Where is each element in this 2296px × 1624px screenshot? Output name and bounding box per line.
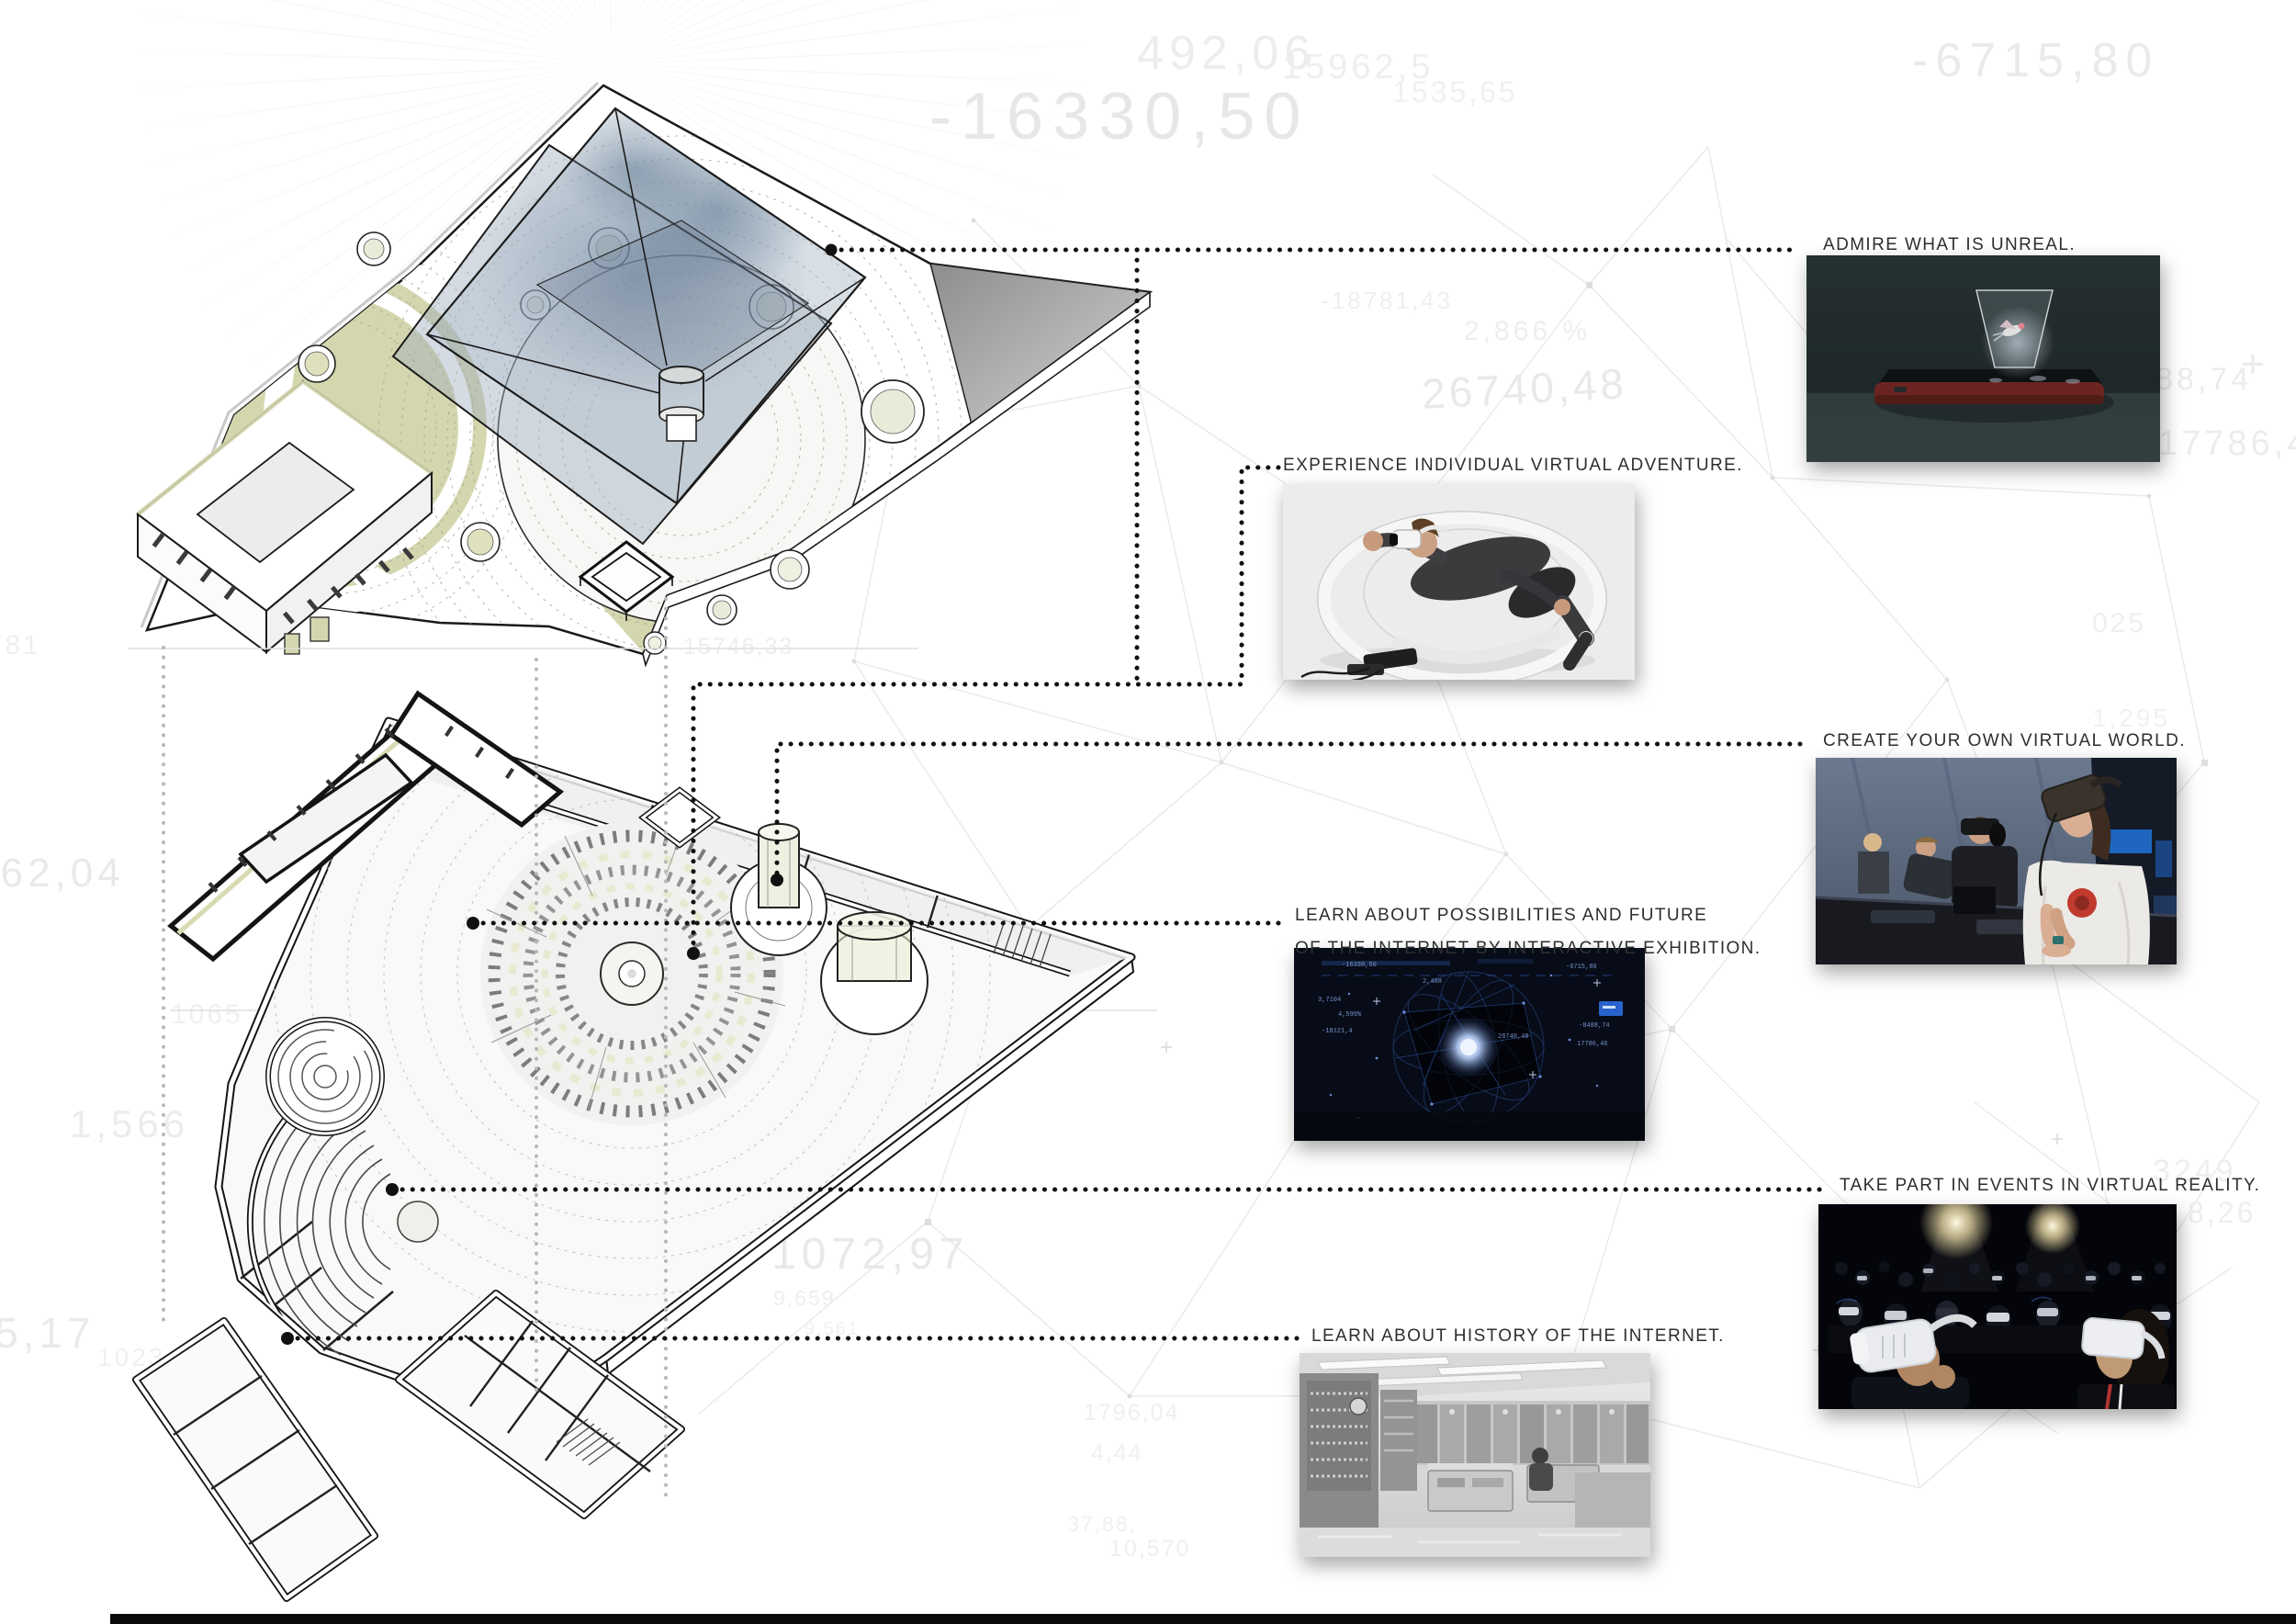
caption-create: CREATE YOUR OWN VIRTUAL WORLD. (1823, 731, 2186, 751)
photo-vr-rig (1283, 484, 1635, 680)
presentation-board: -16330,50492,0615962,51535,65-6715,80267… (0, 0, 2296, 1624)
vr-crowd-illustration (1818, 1204, 2177, 1409)
viz-label: 17786,46 (1577, 1041, 1608, 1048)
photo-computer-room (1300, 1353, 1650, 1557)
hologram-illustration (1806, 255, 2160, 462)
floorplan-axonometric-drawing (136, 615, 1133, 1598)
viz-label: -6715,80 (1566, 964, 1597, 971)
viz-label: 26740,48 (1498, 1033, 1529, 1041)
site-axonometric-drawing (117, 83, 1150, 742)
photo-internet-visualization: -16330,50 -6715,80 -18121,4 26740,48 -84… (1294, 948, 1645, 1141)
footer-bar (110, 1614, 2296, 1624)
caption-admire: ADMIRE WHAT IS UNREAL. (1823, 235, 2076, 255)
cylindrical-tower-large (821, 912, 928, 1034)
caption-learn-future-line2: OF THE INTERNET BY INTERACTIVE EXHIBITIO… (1295, 939, 1761, 959)
leader-create (777, 744, 1800, 880)
computer-room-illustration (1300, 1353, 1650, 1557)
internet-viz-illustration: -16330,50 -6715,80 -18121,4 26740,48 -84… (1294, 948, 1645, 1141)
vr-expo-illustration (1816, 758, 2177, 964)
viz-label: -8488,74 (1579, 1022, 1610, 1030)
caption-learn-future-line1: LEARN ABOUT POSSIBILITIES AND FUTURE (1295, 906, 1707, 926)
viz-label: 4,599% (1338, 1011, 1362, 1019)
viz-label: 3,7104 (1318, 997, 1341, 1004)
caption-events: TAKE PART IN EVENTS IN VIRTUAL REALITY. (1840, 1176, 2260, 1196)
viz-label: -16330,50 (1342, 962, 1377, 969)
viz-label: 2,488 (1423, 978, 1442, 986)
photo-vr-expo (1816, 758, 2177, 964)
rooms-wing-left (136, 1321, 375, 1598)
caption-history: LEARN ABOUT HISTORY OF THE INTERNET. (1311, 1326, 1725, 1347)
photo-vr-crowd (1818, 1204, 2177, 1409)
photo-hologram-pyramid (1806, 255, 2160, 462)
caption-experience: EXPERIENCE INDIVIDUAL VIRTUAL ADVENTURE. (1283, 456, 1743, 476)
viz-label: -18121,4 (1322, 1028, 1353, 1035)
vr-rig-illustration (1283, 484, 1635, 680)
circular-labyrinth (268, 1020, 382, 1133)
